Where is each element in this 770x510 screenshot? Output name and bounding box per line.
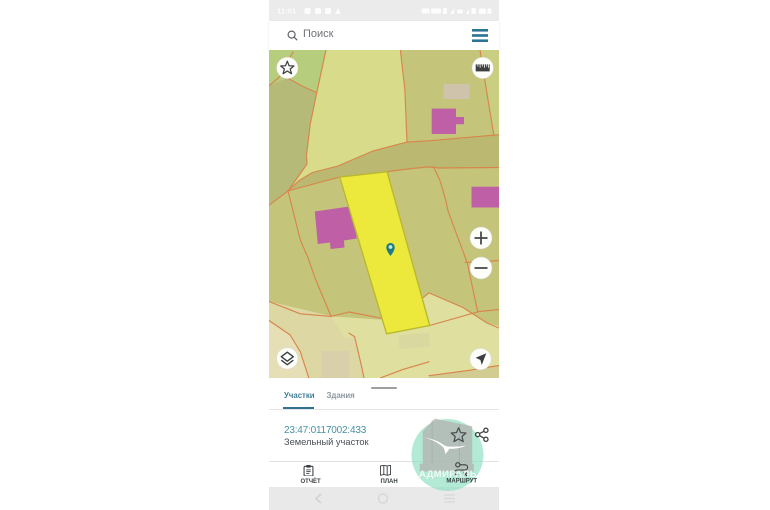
svg-text:11:01: 11:01 (277, 7, 297, 16)
svg-text:МАРШРУТ: МАРШРУТ (446, 479, 477, 485)
svg-text:АДМИРАЛЬ: АДМИРАЛЬ (419, 468, 477, 479)
